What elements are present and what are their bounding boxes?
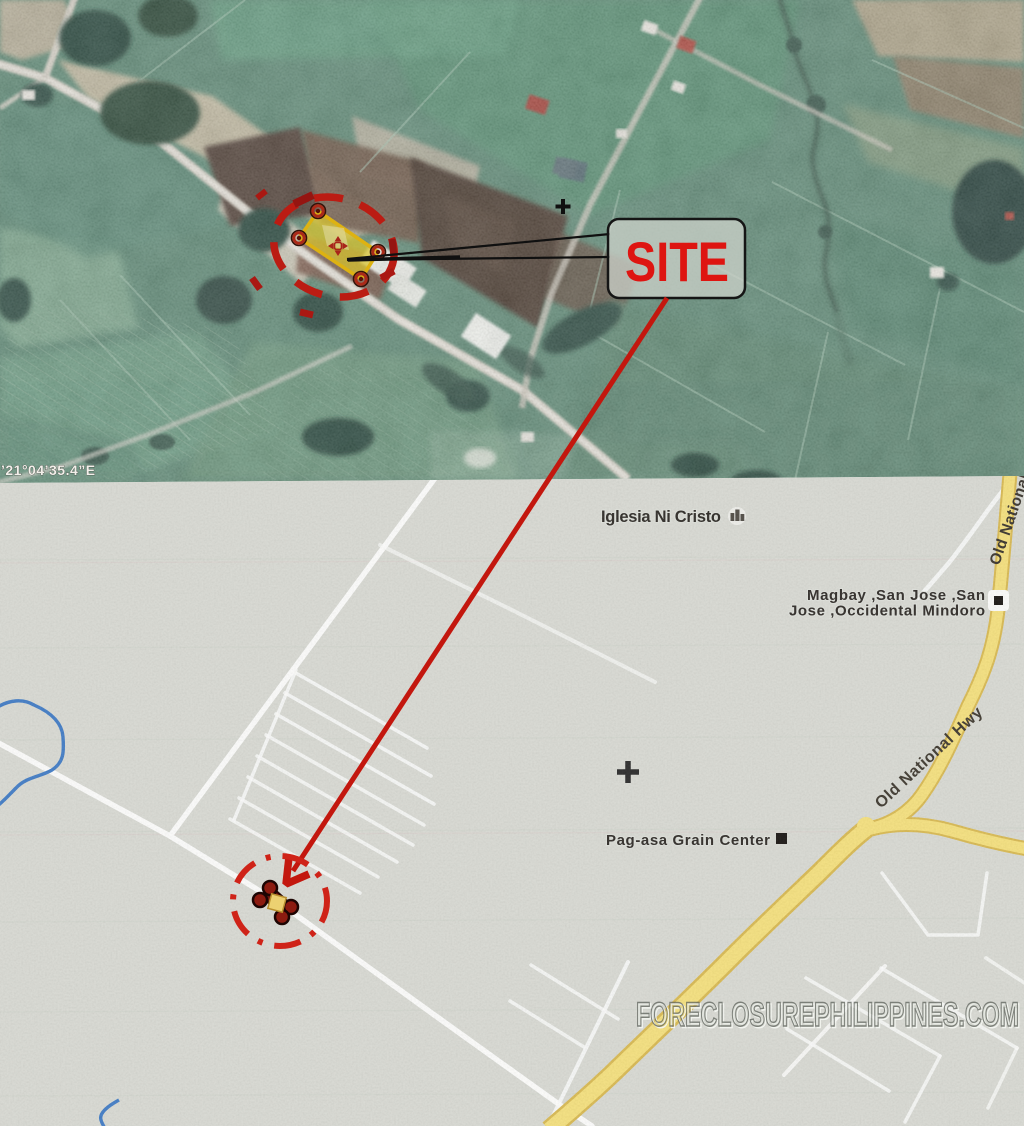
- svg-text:’21°04’35.4”E: ’21°04’35.4”E: [1, 462, 96, 478]
- svg-text:SITE: SITE: [625, 230, 729, 293]
- svg-text:FORECLOSUREPHILIPPINES.COM: FORECLOSUREPHILIPPINES.COM: [636, 996, 1019, 1034]
